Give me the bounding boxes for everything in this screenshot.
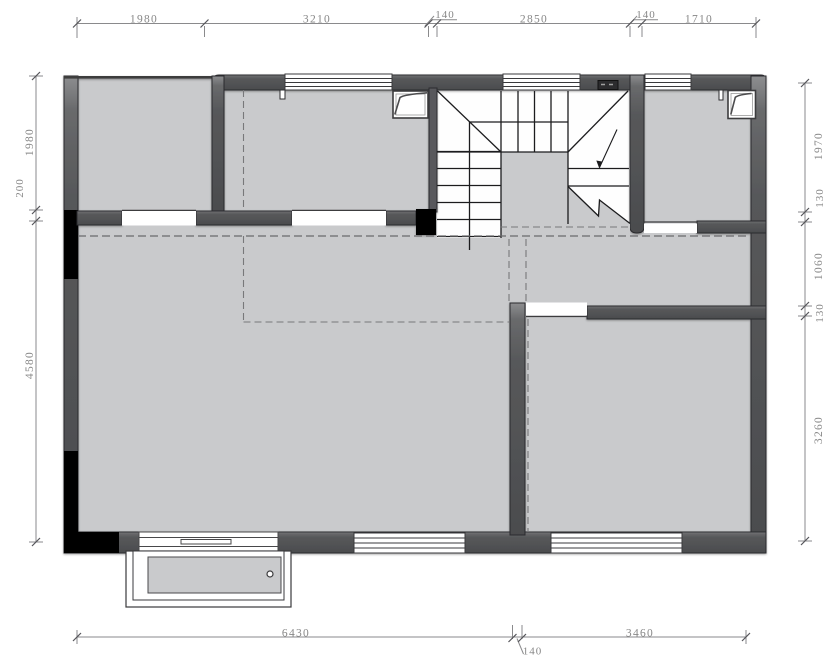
svg-text:1060: 1060: [813, 252, 825, 280]
svg-text:140: 140: [523, 646, 543, 655]
svg-text:1970: 1970: [813, 132, 825, 160]
svg-text:2850: 2850: [520, 14, 548, 26]
svg-text:1980: 1980: [24, 128, 36, 156]
svg-text:130: 130: [814, 303, 826, 323]
svg-text:1710: 1710: [685, 14, 713, 26]
svg-text:4580: 4580: [24, 351, 36, 379]
svg-text:1980: 1980: [130, 14, 158, 26]
svg-text:140: 140: [636, 9, 656, 21]
svg-text:130: 130: [814, 188, 826, 208]
svg-text:6430: 6430: [282, 628, 310, 640]
svg-text:140: 140: [435, 9, 455, 21]
svg-text:3210: 3210: [303, 14, 331, 26]
svg-text:200: 200: [14, 178, 26, 198]
svg-text:3460: 3460: [626, 628, 654, 640]
svg-text:3260: 3260: [813, 416, 825, 444]
